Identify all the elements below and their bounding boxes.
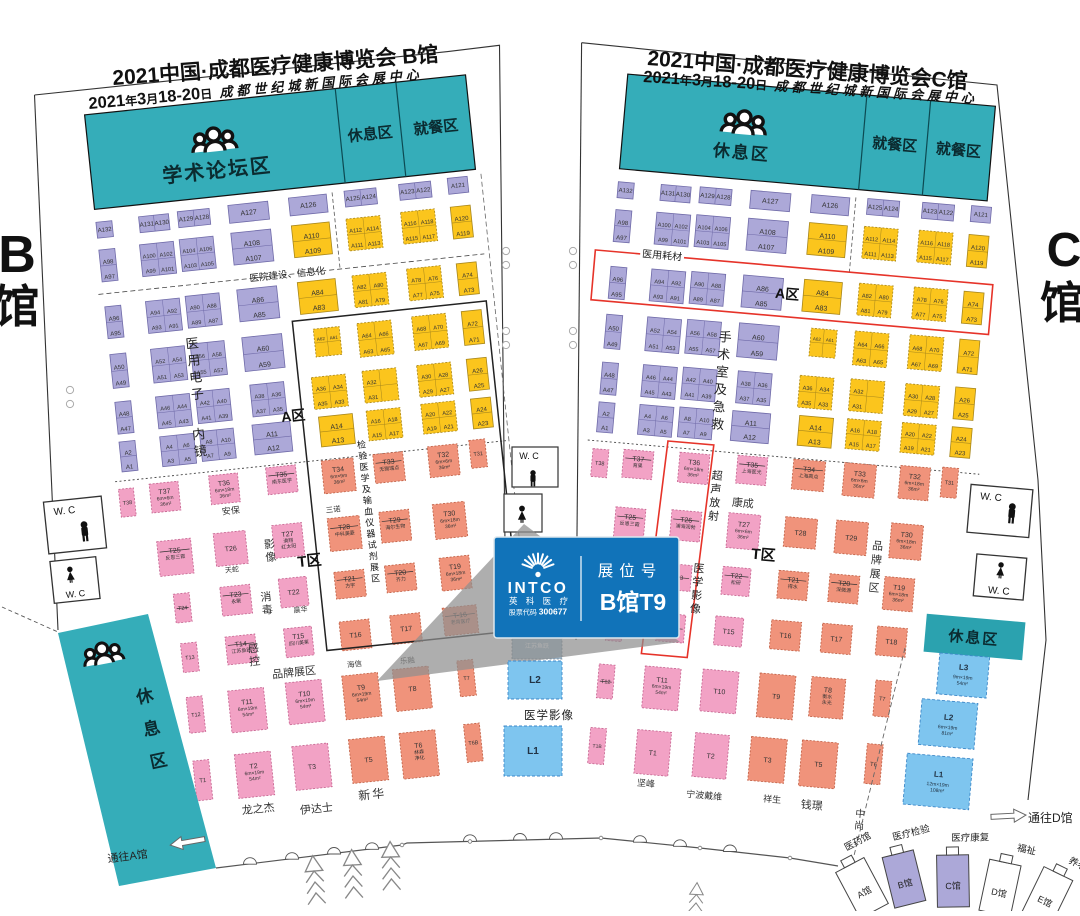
svg-text:A30: A30 (908, 394, 918, 401)
svg-text:A83: A83 (313, 304, 326, 312)
svg-text:A42: A42 (200, 400, 211, 407)
svg-text:A98: A98 (103, 259, 115, 266)
svg-text:A71: A71 (469, 337, 481, 344)
svg-text:A79: A79 (877, 310, 887, 317)
svg-text:深微源: 深微源 (836, 586, 852, 594)
svg-text:36m²: 36m² (450, 576, 462, 583)
svg-text:A45: A45 (644, 390, 654, 397)
svg-text:A132: A132 (618, 188, 633, 195)
svg-text:A7: A7 (683, 430, 690, 437)
svg-text:A41: A41 (201, 415, 212, 422)
svg-text:馆: 馆 (0, 281, 40, 332)
svg-text:36m²: 36m² (892, 597, 904, 604)
svg-text:W. C: W. C (987, 585, 1010, 598)
svg-text:T2: T2 (706, 753, 715, 761)
svg-text:剂: 剂 (368, 550, 378, 562)
svg-text:T24: T24 (178, 605, 188, 612)
svg-text:A124: A124 (884, 205, 900, 213)
svg-text:A40: A40 (217, 399, 228, 406)
svg-text:54m²: 54m² (356, 697, 368, 704)
svg-text:A29: A29 (423, 389, 434, 396)
svg-text:A35: A35 (317, 401, 328, 408)
svg-text:A28: A28 (925, 395, 935, 402)
svg-text:A29: A29 (907, 409, 917, 416)
svg-text:区: 区 (371, 573, 381, 584)
svg-text:A36: A36 (271, 392, 282, 399)
svg-text:内: 内 (191, 426, 206, 442)
svg-text:A60: A60 (752, 334, 765, 342)
svg-text:T3: T3 (763, 757, 772, 765)
svg-text:A122: A122 (938, 209, 954, 217)
svg-text:T9: T9 (772, 693, 781, 701)
svg-text:三诺: 三诺 (325, 503, 341, 515)
svg-text:A5: A5 (660, 429, 667, 436)
svg-text:用: 用 (187, 352, 202, 368)
svg-text:A9: A9 (699, 432, 706, 439)
svg-text:A15: A15 (849, 442, 859, 449)
svg-text:A46: A46 (160, 406, 171, 413)
svg-text:影: 影 (691, 589, 703, 603)
svg-text:A92: A92 (671, 281, 681, 288)
svg-text:A44: A44 (663, 376, 673, 383)
svg-text:T15: T15 (722, 628, 735, 636)
svg-text:A68: A68 (416, 326, 427, 333)
svg-text:36m²: 36m² (445, 523, 457, 530)
svg-text:通往D馆: 通往D馆 (1028, 810, 1073, 825)
svg-text:36m²: 36m² (737, 534, 749, 541)
svg-text:A89: A89 (191, 320, 202, 327)
svg-text:A70: A70 (929, 347, 939, 354)
svg-text:A55: A55 (688, 346, 698, 353)
svg-text:子: 子 (190, 386, 205, 402)
svg-text:A26: A26 (472, 368, 484, 375)
svg-text:检: 检 (356, 438, 366, 450)
svg-text:A92: A92 (167, 308, 178, 315)
svg-text:试: 试 (367, 539, 377, 551)
svg-text:A52: A52 (650, 328, 660, 335)
svg-text:品: 品 (872, 539, 884, 553)
svg-text:108m²: 108m² (930, 787, 945, 794)
svg-text:A67: A67 (911, 362, 921, 369)
svg-text:A112: A112 (865, 236, 878, 243)
svg-text:A33: A33 (818, 402, 828, 409)
svg-text:A78: A78 (411, 278, 422, 285)
svg-text:B: B (0, 226, 36, 284)
svg-text:A38: A38 (254, 394, 265, 401)
svg-text:A4: A4 (166, 445, 173, 452)
svg-text:A42: A42 (686, 377, 696, 384)
svg-text:T16: T16 (779, 632, 792, 640)
svg-text:A3: A3 (643, 428, 650, 435)
svg-text:A2: A2 (124, 450, 133, 457)
svg-text:36m²: 36m² (438, 464, 450, 471)
svg-text:A127: A127 (762, 198, 779, 206)
svg-text:A区: A区 (775, 285, 800, 303)
svg-text:T26: T26 (224, 545, 237, 553)
svg-text:A8: A8 (205, 439, 212, 446)
svg-text:T6B: T6B (468, 740, 479, 747)
svg-text:A57: A57 (705, 348, 715, 355)
svg-text:A106: A106 (714, 226, 728, 233)
svg-text:A14: A14 (330, 423, 343, 431)
svg-text:A28: A28 (438, 372, 449, 379)
svg-text:消: 消 (260, 589, 272, 604)
svg-text:36m²: 36m² (160, 501, 172, 508)
svg-text:A81: A81 (860, 308, 870, 315)
svg-text:W. C: W. C (53, 505, 76, 518)
svg-text:医: 医 (185, 335, 200, 351)
svg-text:A125: A125 (868, 204, 884, 212)
svg-text:净化: 净化 (414, 754, 425, 762)
svg-text:A45: A45 (162, 420, 173, 427)
svg-text:A111: A111 (351, 242, 364, 249)
svg-text:A56: A56 (690, 331, 700, 338)
svg-text:A66: A66 (378, 331, 389, 338)
svg-text:A99: A99 (146, 268, 157, 275)
svg-text:A126: A126 (822, 202, 839, 210)
svg-text:A32: A32 (853, 389, 863, 396)
svg-text:A102: A102 (674, 224, 688, 231)
svg-text:T17: T17 (400, 625, 413, 633)
svg-text:展: 展 (369, 562, 379, 573)
svg-text:学: 学 (360, 472, 370, 484)
svg-text:A100: A100 (657, 222, 671, 229)
svg-text:仪: 仪 (365, 517, 375, 528)
svg-text:A128: A128 (716, 193, 732, 201)
svg-text:A50: A50 (608, 326, 620, 333)
svg-text:L3: L3 (959, 663, 970, 673)
svg-text:T31: T31 (944, 480, 954, 487)
svg-text:A24: A24 (956, 437, 968, 444)
svg-text:A130: A130 (675, 191, 691, 199)
svg-text:A49: A49 (607, 342, 619, 349)
svg-text:A111: A111 (864, 251, 877, 258)
svg-text:A75: A75 (932, 314, 942, 321)
svg-text:C: C (1047, 224, 1080, 277)
svg-text:A19: A19 (903, 446, 913, 453)
svg-text:A65: A65 (380, 347, 391, 354)
svg-text:祥生: 祥生 (763, 793, 782, 806)
svg-text:54m²: 54m² (655, 690, 667, 697)
svg-text:A96: A96 (109, 316, 121, 323)
svg-text:W. C: W. C (519, 451, 539, 461)
svg-text:A16: A16 (850, 428, 860, 435)
svg-text:A82: A82 (862, 293, 872, 300)
svg-text:A97: A97 (104, 274, 116, 281)
svg-text:A54: A54 (172, 357, 183, 364)
svg-text:A18: A18 (867, 429, 877, 436)
svg-text:学: 学 (692, 574, 704, 589)
svg-text:T17: T17 (830, 636, 843, 644)
svg-text:A115: A115 (919, 255, 932, 262)
svg-text:馆: 馆 (1040, 279, 1080, 328)
svg-text:A22: A22 (922, 433, 932, 440)
svg-text:A95: A95 (110, 331, 122, 338)
svg-text:A83: A83 (815, 305, 828, 313)
svg-text:得水: 得水 (787, 583, 798, 591)
svg-text:T区: T区 (297, 552, 323, 571)
svg-text:A6: A6 (183, 443, 190, 450)
svg-text:A39: A39 (218, 414, 229, 421)
svg-text:36m²: 36m² (900, 544, 912, 551)
svg-text:A103: A103 (696, 240, 710, 247)
svg-text:A48: A48 (119, 411, 131, 418)
svg-text:T6: T6 (870, 762, 878, 769)
svg-text:A76: A76 (428, 276, 439, 283)
svg-text:W. C: W. C (980, 491, 1003, 504)
svg-text:A15: A15 (372, 433, 383, 440)
svg-text:A81: A81 (358, 299, 369, 306)
svg-text:A19: A19 (427, 426, 438, 433)
svg-text:A44: A44 (177, 404, 188, 411)
svg-text:A11: A11 (745, 420, 758, 428)
svg-text:电: 电 (188, 369, 203, 385)
svg-text:器: 器 (366, 528, 376, 539)
svg-text:尚: 尚 (854, 819, 865, 833)
svg-text:A46: A46 (646, 375, 656, 382)
svg-text:牌: 牌 (870, 552, 882, 567)
svg-text:新华: 新华 (357, 785, 386, 803)
svg-text:A49: A49 (115, 380, 127, 387)
svg-text:A30: A30 (421, 374, 432, 381)
svg-text:A23: A23 (478, 421, 490, 428)
svg-text:T38: T38 (595, 461, 605, 468)
svg-text:A61: A61 (826, 337, 835, 343)
svg-text:A85: A85 (253, 312, 266, 320)
svg-text:A88: A88 (207, 303, 218, 310)
svg-text:及: 及 (714, 381, 728, 397)
svg-text:A48: A48 (604, 373, 616, 380)
svg-text:A98: A98 (617, 220, 629, 227)
svg-text:像: 像 (265, 550, 277, 564)
svg-text:A36: A36 (757, 383, 767, 390)
svg-text:T16: T16 (349, 632, 362, 640)
svg-text:A2: A2 (602, 412, 610, 419)
svg-text:A25: A25 (958, 413, 970, 420)
svg-text:验: 验 (358, 449, 368, 461)
svg-text:A113: A113 (881, 253, 894, 260)
svg-text:永聚: 永聚 (231, 597, 242, 605)
svg-text:A37: A37 (256, 409, 267, 416)
svg-text:A71: A71 (962, 367, 974, 374)
svg-text:36m²: 36m² (908, 486, 920, 493)
svg-text:齐力: 齐力 (396, 575, 407, 583)
svg-text:A35: A35 (801, 400, 811, 407)
svg-text:A36: A36 (802, 386, 812, 393)
svg-text:A93: A93 (152, 325, 163, 332)
svg-text:A78: A78 (916, 297, 926, 304)
svg-text:手: 手 (718, 329, 732, 345)
svg-text:54m²: 54m² (956, 680, 968, 687)
svg-text:L1: L1 (527, 746, 539, 757)
svg-text:A86: A86 (251, 297, 264, 305)
svg-text:A11: A11 (266, 431, 279, 439)
svg-text:A17: A17 (389, 431, 400, 438)
svg-text:永光: 永光 (821, 699, 832, 707)
svg-text:L2: L2 (529, 675, 541, 686)
svg-text:A96: A96 (612, 277, 624, 284)
svg-text:镜: 镜 (193, 443, 208, 459)
svg-text:A21: A21 (444, 424, 455, 431)
svg-text:A79: A79 (375, 298, 386, 305)
svg-text:A13: A13 (332, 437, 345, 445)
svg-text:C馆: C馆 (945, 880, 961, 891)
svg-text:A119: A119 (970, 260, 985, 267)
svg-text:A51: A51 (648, 344, 658, 351)
svg-text:A110: A110 (819, 233, 835, 241)
svg-text:A18: A18 (387, 417, 398, 424)
svg-text:B馆T9: B馆T9 (600, 589, 666, 615)
svg-text:A94: A94 (654, 279, 664, 286)
svg-text:A67: A67 (418, 342, 429, 349)
svg-text:区: 区 (868, 582, 880, 595)
svg-text:T5: T5 (814, 761, 823, 769)
svg-text:A1: A1 (126, 464, 135, 471)
svg-text:A16: A16 (371, 419, 382, 426)
svg-text:A14: A14 (809, 425, 822, 433)
svg-text:A25: A25 (474, 383, 486, 390)
svg-text:A47: A47 (120, 426, 132, 433)
svg-text:T3: T3 (308, 764, 317, 772)
svg-text:A80: A80 (373, 283, 384, 290)
svg-text:A57: A57 (213, 368, 224, 375)
svg-text:T8: T8 (408, 686, 417, 694)
svg-text:输: 输 (362, 494, 372, 506)
svg-text:A39: A39 (701, 394, 711, 401)
svg-text:A20: A20 (905, 432, 915, 439)
svg-text:W. C: W. C (65, 588, 86, 600)
svg-text:室: 室 (715, 364, 729, 380)
svg-text:T10: T10 (713, 688, 726, 696)
svg-text:A50: A50 (114, 365, 126, 372)
svg-text:医: 医 (359, 462, 369, 473)
svg-text:A47: A47 (603, 388, 615, 395)
svg-text:A6: A6 (661, 415, 668, 422)
svg-text:A84: A84 (816, 290, 829, 298)
svg-text:A72: A72 (963, 351, 975, 358)
svg-text:A22: A22 (442, 410, 453, 417)
svg-text:T13: T13 (185, 655, 195, 662)
svg-text:A7: A7 (207, 453, 214, 460)
svg-text:A72: A72 (467, 321, 479, 328)
svg-text:A69: A69 (435, 341, 446, 348)
svg-text:A33: A33 (334, 399, 345, 406)
svg-text:A105: A105 (713, 241, 727, 248)
svg-text:L1: L1 (934, 770, 945, 780)
svg-text:A85: A85 (755, 301, 768, 309)
svg-text:A66: A66 (874, 344, 884, 351)
svg-text:A58: A58 (707, 332, 717, 339)
svg-text:A38: A38 (740, 381, 750, 388)
svg-text:超: 超 (711, 468, 723, 483)
svg-text:A59: A59 (258, 361, 271, 369)
svg-text:海信: 海信 (346, 658, 362, 670)
svg-text:A120: A120 (971, 245, 986, 252)
svg-text:A70: A70 (433, 325, 444, 332)
svg-text:A9: A9 (224, 451, 231, 458)
svg-text:A87: A87 (208, 318, 219, 325)
svg-text:54m²: 54m² (249, 776, 261, 783)
svg-text:T12: T12 (601, 679, 611, 686)
svg-text:A89: A89 (693, 297, 703, 304)
svg-text:T31: T31 (473, 451, 483, 458)
svg-text:A8: A8 (684, 416, 691, 423)
svg-text:A60: A60 (257, 345, 270, 353)
svg-text:A90: A90 (694, 282, 704, 289)
svg-text:36m²: 36m² (853, 483, 865, 490)
svg-text:A20: A20 (425, 412, 436, 419)
svg-text:T38: T38 (122, 500, 132, 507)
svg-text:A97: A97 (616, 235, 628, 242)
svg-text:A90: A90 (190, 305, 201, 312)
svg-text:放: 放 (709, 495, 721, 510)
svg-text:81m²: 81m² (941, 730, 953, 737)
svg-text:A54: A54 (667, 330, 677, 337)
svg-text:A31: A31 (852, 404, 862, 411)
svg-text:A116: A116 (920, 240, 933, 247)
svg-text:A76: A76 (933, 299, 943, 306)
svg-text:及: 及 (361, 484, 371, 495)
svg-text:急: 急 (712, 399, 726, 415)
svg-text:A108: A108 (759, 229, 776, 237)
svg-text:A75: A75 (430, 291, 441, 298)
svg-text:T22: T22 (287, 589, 300, 597)
svg-text:T1: T1 (648, 750, 657, 758)
svg-text:54m²: 54m² (242, 711, 254, 718)
svg-text:A123: A123 (922, 208, 938, 216)
svg-text:A34: A34 (333, 384, 344, 391)
svg-text:A26: A26 (959, 398, 971, 405)
svg-text:36m²: 36m² (333, 479, 345, 486)
svg-text:A121: A121 (974, 212, 989, 219)
svg-text:医疗康复: 医疗康复 (951, 831, 990, 844)
svg-text:A40: A40 (703, 379, 713, 386)
svg-text:术: 术 (717, 346, 731, 362)
svg-text:36m²: 36m² (687, 472, 699, 479)
svg-text:A27: A27 (924, 410, 934, 417)
svg-text:A118: A118 (937, 242, 950, 249)
svg-text:A34: A34 (819, 387, 829, 394)
svg-text:毒: 毒 (261, 603, 273, 617)
svg-text:A95: A95 (611, 292, 623, 299)
svg-text:A74: A74 (462, 273, 474, 280)
svg-text:A1: A1 (601, 426, 609, 433)
svg-text:A58: A58 (212, 352, 223, 359)
svg-text:A101: A101 (673, 239, 687, 246)
svg-text:A99: A99 (658, 237, 668, 244)
svg-text:英 科 医 疗: 英 科 医 疗 (509, 596, 571, 606)
svg-text:A43: A43 (179, 419, 190, 426)
svg-text:松研: 松研 (731, 579, 742, 587)
svg-text:A53: A53 (665, 345, 675, 352)
svg-text:A80: A80 (879, 295, 889, 302)
svg-text:安保: 安保 (221, 504, 240, 517)
svg-text:坚峰: 坚峰 (637, 778, 656, 790)
svg-text:A131: A131 (661, 190, 677, 198)
svg-text:T5: T5 (364, 757, 373, 765)
svg-text:T29: T29 (845, 535, 858, 543)
svg-text:A27: A27 (440, 387, 451, 394)
svg-text:A77: A77 (413, 293, 424, 300)
svg-text:射: 射 (708, 508, 720, 523)
svg-text:A62: A62 (813, 336, 822, 342)
svg-text:A12: A12 (743, 434, 756, 442)
svg-text:A114: A114 (882, 238, 895, 245)
svg-text:A5: A5 (184, 457, 191, 464)
svg-text:A3: A3 (167, 458, 174, 465)
svg-text:展位号: 展位号 (598, 562, 663, 580)
svg-text:方宇: 方宇 (345, 582, 356, 590)
